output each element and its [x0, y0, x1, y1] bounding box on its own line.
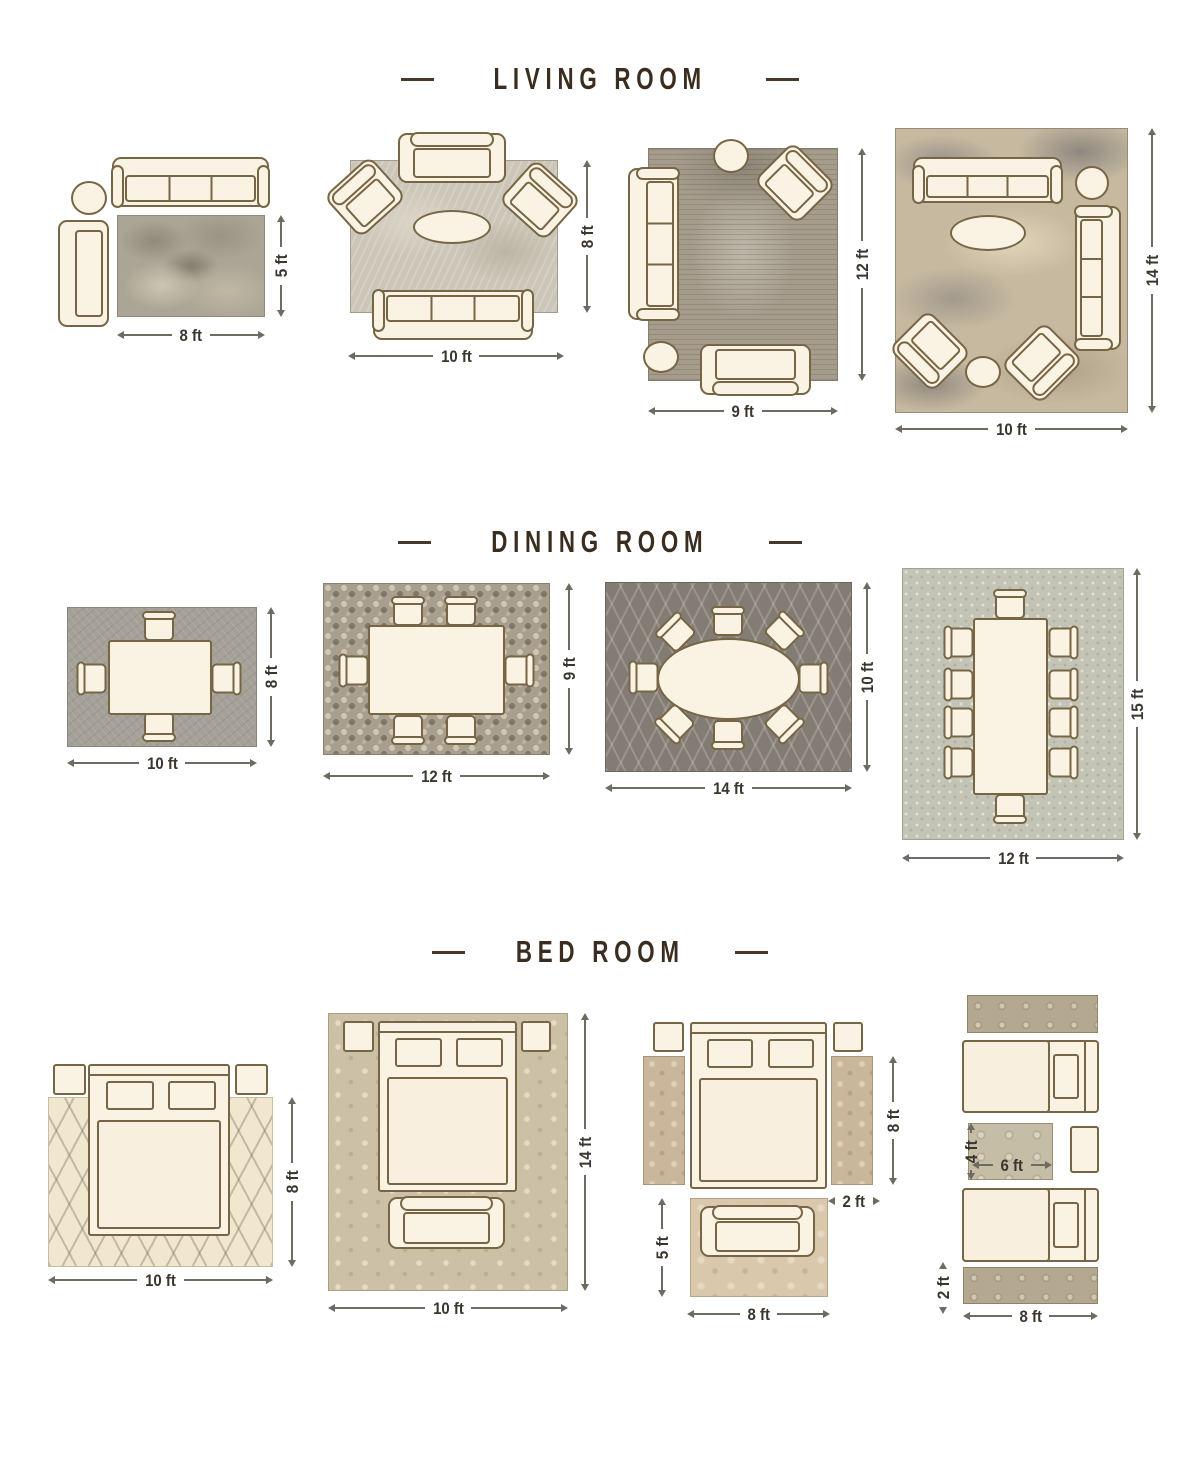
center-rug-width-dimension: 6 ft — [972, 1156, 1052, 1174]
nightstand — [833, 1022, 863, 1052]
bed — [378, 1021, 517, 1192]
seat-cushions — [926, 175, 1049, 198]
width-dimension: 10 ft — [67, 754, 257, 772]
runner-rug — [963, 1267, 1098, 1304]
height-dimension: 15 ft — [1128, 568, 1146, 840]
dining-chair — [446, 715, 476, 742]
sofa — [1075, 206, 1121, 350]
loveseat — [398, 133, 506, 183]
dining-chair — [505, 656, 532, 686]
bed — [690, 1022, 827, 1189]
runner-rug — [831, 1056, 873, 1185]
pillow — [106, 1081, 154, 1110]
dining-chair — [342, 656, 369, 686]
bench — [700, 1206, 815, 1257]
width-dimension: 10 ft — [348, 347, 564, 365]
width-dimension: 14 ft — [605, 779, 852, 797]
runner-width-dimension: 2 ft — [828, 1192, 876, 1210]
height-dimension: 12 ft — [853, 148, 871, 381]
height-dimension: 8 ft — [283, 1097, 301, 1267]
dining-chair — [1049, 708, 1076, 738]
title-dash — [401, 78, 434, 81]
round-side-table — [1075, 166, 1109, 200]
height-dimension: 9 ft — [560, 583, 578, 755]
width-dimension: 10 ft — [48, 1271, 273, 1289]
width-dimension: 8 ft — [117, 326, 265, 344]
dining-chair — [947, 670, 974, 700]
title-dash — [769, 541, 802, 544]
height-dimension: 10 ft — [858, 582, 876, 772]
twin-bed — [962, 1188, 1099, 1262]
nightstand — [343, 1021, 374, 1052]
width-dimension: 10 ft — [328, 1299, 568, 1317]
seat-cushions — [125, 175, 256, 202]
oval-dining-table — [657, 638, 800, 720]
twin-bed — [962, 1040, 1099, 1113]
height-dimension: 14 ft — [576, 1013, 594, 1291]
height-dimension: 5 ft — [272, 215, 290, 317]
dining-chair — [995, 592, 1025, 619]
oval-coffee-table — [413, 210, 491, 244]
rug-size-guide: LIVING ROOM 8 ft 5 ft 10 ft 8 ft 9 ft 12… — [0, 0, 1200, 1467]
runner-length-dimension: 8 ft — [884, 1056, 902, 1185]
dining-table — [108, 640, 212, 715]
bench — [388, 1197, 505, 1249]
foot-rug-height-dimension: 5 ft — [653, 1198, 671, 1297]
width-dimension: 9 ft — [648, 402, 838, 420]
section-header-living-room: LIVING ROOM — [0, 61, 1200, 97]
dining-chair — [632, 663, 659, 693]
dining-chair — [393, 599, 423, 626]
dining-chair — [947, 748, 974, 778]
round-side-table — [965, 356, 1001, 388]
dining-chair — [144, 614, 174, 641]
runner-length-dimension: 8 ft — [963, 1307, 1098, 1325]
section-title: DINING ROOM — [491, 524, 708, 560]
dining-chair — [947, 708, 974, 738]
round-side-table — [71, 181, 107, 215]
seat-cushions — [386, 295, 520, 322]
title-dash — [432, 951, 465, 954]
pillow — [168, 1081, 216, 1110]
section-title: BED ROOM — [516, 934, 685, 970]
dining-chair — [1049, 748, 1076, 778]
sofa — [913, 157, 1062, 203]
section-header-bed-room: BED ROOM — [0, 934, 1200, 970]
dining-chair — [80, 664, 107, 694]
sofa — [373, 290, 533, 340]
width-dimension: 12 ft — [902, 849, 1124, 867]
seat-cushions — [646, 181, 674, 307]
pillow — [456, 1038, 503, 1067]
nightstand — [235, 1064, 268, 1095]
foot-rug-width-dimension: 8 ft — [687, 1305, 830, 1323]
section-title: LIVING ROOM — [493, 61, 706, 97]
dining-chair — [713, 720, 743, 747]
round-side-table — [713, 139, 749, 173]
nightstand — [1070, 1126, 1099, 1173]
oval-coffee-table — [950, 215, 1026, 251]
sofa — [628, 168, 679, 320]
loveseat — [700, 344, 811, 395]
dining-chair — [947, 628, 974, 658]
dining-chair — [212, 664, 239, 694]
runner-rug — [643, 1056, 685, 1185]
dining-chair — [1049, 628, 1076, 658]
runner-rug — [967, 995, 1098, 1033]
width-dimension: 10 ft — [895, 420, 1128, 438]
dining-chair — [995, 794, 1025, 821]
dining-chair — [1049, 670, 1076, 700]
dining-chair — [144, 712, 174, 739]
height-dimension: 14 ft — [1143, 128, 1161, 413]
runner-width-dimension: 2 ft — [934, 1262, 952, 1308]
nightstand — [521, 1021, 551, 1052]
pillow — [768, 1039, 814, 1068]
seat-cushions — [1080, 219, 1103, 337]
pillow — [707, 1039, 753, 1068]
nightstand — [53, 1064, 86, 1095]
bed — [88, 1064, 230, 1236]
chaise-sofa — [58, 220, 109, 327]
title-dash — [735, 951, 768, 954]
width-dimension: 12 ft — [323, 767, 550, 785]
pillow — [395, 1038, 442, 1067]
dining-chair — [713, 609, 743, 636]
dining-chair — [799, 664, 826, 694]
dining-chair — [393, 715, 423, 742]
sofa — [112, 157, 269, 207]
dining-table — [973, 618, 1048, 795]
nightstand — [653, 1022, 684, 1052]
round-side-table — [643, 341, 679, 373]
height-dimension: 8 ft — [262, 607, 280, 747]
section-header-dining-room: DINING ROOM — [0, 524, 1200, 560]
dining-table — [368, 625, 505, 715]
title-dash — [398, 541, 431, 544]
dining-chair — [446, 599, 476, 626]
rug — [117, 215, 265, 317]
title-dash — [766, 78, 799, 81]
height-dimension: 8 ft — [578, 160, 596, 313]
